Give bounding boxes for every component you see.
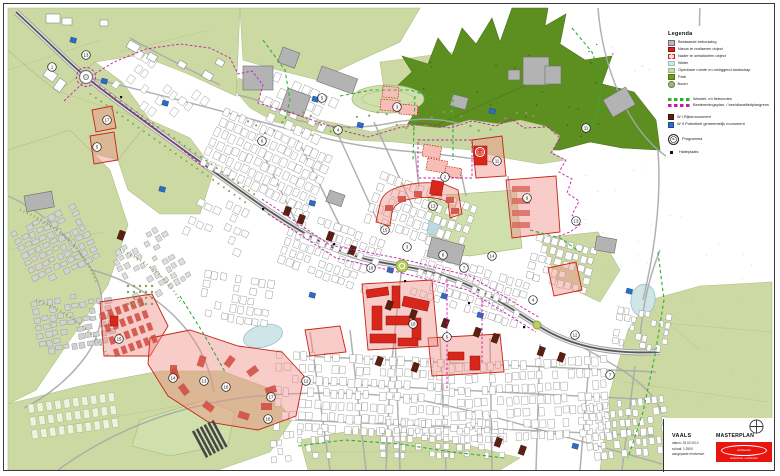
legend-swatch	[668, 54, 675, 60]
legend-swatch	[668, 74, 675, 80]
legend-swatch	[668, 81, 675, 88]
legend-item: nr.Programma	[668, 134, 774, 145]
programma-marker-4: 4	[529, 296, 538, 305]
programma-marker-18: 18	[367, 264, 376, 273]
svg-text:16: 16	[224, 385, 229, 390]
legend-swatch	[668, 47, 675, 53]
legend-dash-swatch	[668, 104, 690, 106]
programma-marker-7: 7	[606, 371, 615, 380]
programma-marker-15: 15	[381, 226, 390, 235]
programma-marker-12: 12	[571, 331, 580, 340]
legend-item-label: Wandel- en fietsroutes	[693, 97, 732, 102]
legend-item: W II Potentieel gemeentelijk monument	[668, 122, 774, 128]
legend-item-label: Bestemmingsplan- / beeldkwaliteitplangre…	[693, 103, 769, 108]
legend-item: W I Rijksmonument	[668, 114, 774, 120]
svg-text:15: 15	[117, 337, 122, 342]
svg-text:18: 18	[266, 417, 271, 422]
programma-marker-18: 18	[264, 415, 273, 424]
programma-marker-5: 5	[443, 333, 452, 342]
svg-text:11: 11	[584, 126, 589, 131]
svg-text:17: 17	[105, 118, 110, 123]
legend-item-label: Boom	[678, 82, 688, 87]
legend-item-label: W II Potentieel gemeentelijk monument	[677, 122, 745, 127]
svg-text:12: 12	[304, 379, 309, 384]
date-label: datum: 25.02.2013	[672, 441, 712, 445]
legend-item: Boom	[668, 81, 774, 88]
programma-marker-13: 13	[429, 202, 438, 211]
legend-title: Legenda	[668, 31, 774, 37]
programma-marker-5: 5	[318, 94, 327, 103]
legend-item-label: Water	[678, 61, 688, 66]
legend-monument-swatch	[668, 122, 674, 128]
legend-item: Water	[668, 61, 774, 67]
svg-text:18: 18	[369, 266, 374, 271]
legend-item-label: Openbare ruimte en omliggend landschap	[678, 68, 750, 73]
svg-text:13: 13	[574, 219, 579, 224]
programma-marker-9: 9	[523, 194, 532, 203]
legend-item-label: Nieuw te realiseren object	[678, 47, 723, 52]
svg-text:13: 13	[202, 379, 207, 384]
firm-logo: architecten stedenbouw + architectuur	[716, 442, 772, 462]
programma-marker-13: 13	[82, 51, 91, 60]
programma-marker-8: 8	[439, 251, 448, 260]
legend-item: Wandel- en fietsroutes	[668, 97, 774, 102]
legend-panel: Legenda Bestaande bebouwingNieuw te real…	[668, 31, 774, 160]
legend-swatch	[668, 40, 675, 46]
programma-marker-12: 12	[302, 377, 311, 386]
legend-monument-swatch	[668, 114, 674, 120]
programma-marker-accent: 13	[475, 147, 484, 156]
svg-text:17: 17	[269, 395, 274, 400]
legend-swatch	[668, 68, 675, 74]
programma-marker-16: 16	[222, 383, 231, 392]
programma-marker-13: 13	[200, 377, 209, 386]
title-block-left: VAALS datum: 25.02.2013 schaal: 1:2500 a…	[672, 433, 712, 472]
programma-marker-17: 17	[267, 393, 276, 402]
legend-item-label: Bestaande bebouwing	[678, 40, 717, 45]
programma-marker-2: 2	[441, 173, 450, 182]
legend-swatch	[668, 61, 675, 67]
programma-marker-10: 10	[409, 320, 418, 329]
legend-item: Halteplaats	[668, 150, 774, 155]
firm-logo-oval: architecten	[721, 445, 767, 456]
programma-marker-15: 15	[115, 335, 124, 344]
programma-marker-17: 17	[103, 116, 112, 125]
legend-item: Bestemmingsplan- / beeldkwaliteitplangre…	[668, 103, 774, 108]
legend-monument-items: W I RijksmonumentW II Potentieel gemeent…	[668, 114, 774, 127]
firm-logo-text: architecten	[737, 448, 751, 452]
legend-item: Park	[668, 74, 774, 80]
legend-item-label: Nader te ontwikkelen object	[678, 54, 726, 59]
legend-items: Bestaande bebouwingNieuw te realiseren o…	[668, 40, 774, 88]
legend-item: Nieuw te realiseren object	[668, 47, 774, 53]
svg-text:14: 14	[490, 254, 495, 259]
programma-marker-13: 13	[572, 217, 581, 226]
map-canvas: 1311756543211139111315183871415141316171…	[0, 0, 780, 476]
legend-item-label: Programma	[682, 137, 702, 142]
programma-marker-3: 3	[403, 243, 412, 252]
title-block-right: MASTERPLAN architecten stedenbouw + arch…	[716, 433, 772, 472]
halte-legend-icon	[670, 151, 673, 154]
legend-item-label: W I Rijksmonument	[677, 115, 711, 120]
scale-label: schaal: 1:2500	[672, 447, 712, 451]
programma-marker-14: 14	[488, 252, 497, 261]
svg-text:10: 10	[411, 322, 416, 327]
svg-text:11: 11	[495, 159, 500, 164]
legend-line-items: Wandel- en fietsroutesBestemmingsplan- /…	[668, 97, 774, 108]
svg-text:13: 13	[478, 150, 483, 155]
compass-icon	[749, 419, 764, 434]
svg-text:15: 15	[383, 228, 388, 233]
svg-text:13: 13	[431, 204, 436, 209]
firm-logo-subtext: stedenbouw + architectuur	[730, 457, 758, 460]
programma-marker-7: 7	[460, 264, 469, 273]
programma-legend-icon: nr.	[668, 134, 679, 145]
programma-marker-11: 11	[493, 157, 502, 166]
programma-marker-3: 3	[393, 103, 402, 112]
masterplan-sheet: 1311756543211139111315183871415141316171…	[0, 0, 780, 476]
legend-item-label: Park	[678, 75, 686, 80]
legend-item-label: Halteplaats	[679, 150, 698, 155]
svg-text:14: 14	[171, 376, 176, 381]
programma-marker-1: 1	[48, 63, 57, 72]
legend-item: Bestaande bebouwing	[668, 40, 774, 46]
programma-marker-4: 4	[334, 126, 343, 135]
programma-marker-6: 6	[258, 137, 267, 146]
legend-item: Nader te ontwikkelen object	[668, 54, 774, 60]
project-name: VAALS	[672, 433, 712, 439]
programma-marker-11: 11	[582, 124, 591, 133]
programma-marker-14: 14	[169, 374, 178, 383]
legend-item: Openbare ruimte en omliggend landschap	[668, 68, 774, 74]
legend-symbol-items: nr.ProgrammaHalteplaats	[668, 134, 774, 155]
legend-dash-swatch	[668, 98, 690, 100]
status-label: aangepaste eindversie	[672, 452, 712, 456]
svg-text:12: 12	[573, 333, 578, 338]
programma-marker-5: 5	[93, 143, 102, 152]
svg-text:13: 13	[84, 53, 89, 58]
